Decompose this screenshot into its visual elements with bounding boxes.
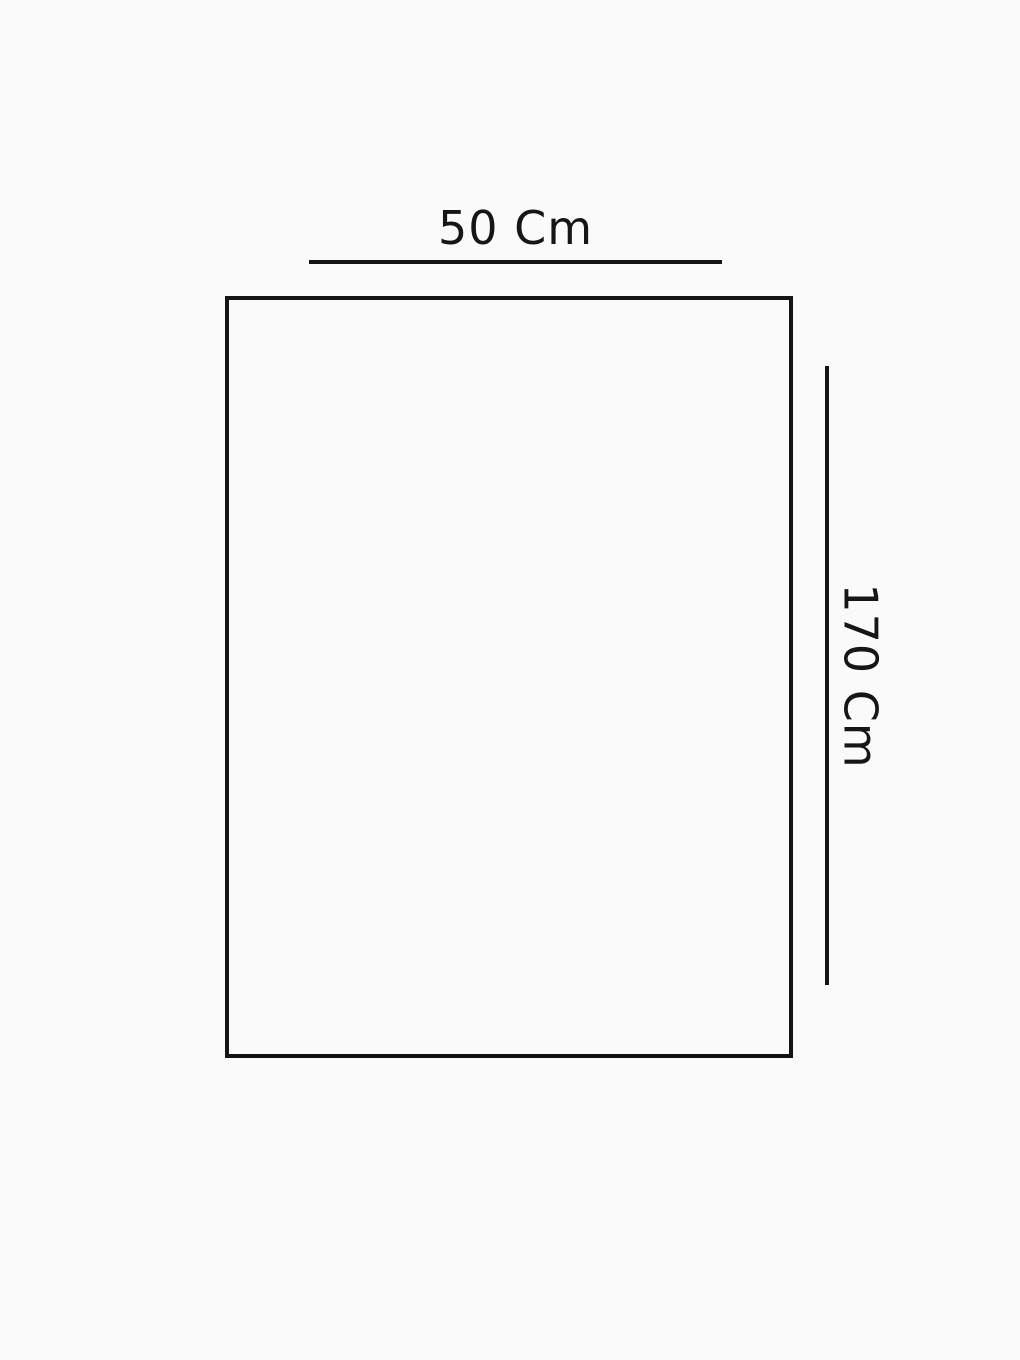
height-dimension-label: 170 Cm bbox=[834, 583, 888, 768]
height-dimension-label-container: 170 Cm bbox=[829, 366, 893, 985]
diagram-canvas: 50 Cm 170 Cm bbox=[0, 0, 1020, 1360]
width-dimension-line bbox=[309, 260, 722, 264]
width-dimension-label: 50 Cm bbox=[309, 200, 722, 256]
product-outline-rectangle bbox=[225, 296, 793, 1058]
